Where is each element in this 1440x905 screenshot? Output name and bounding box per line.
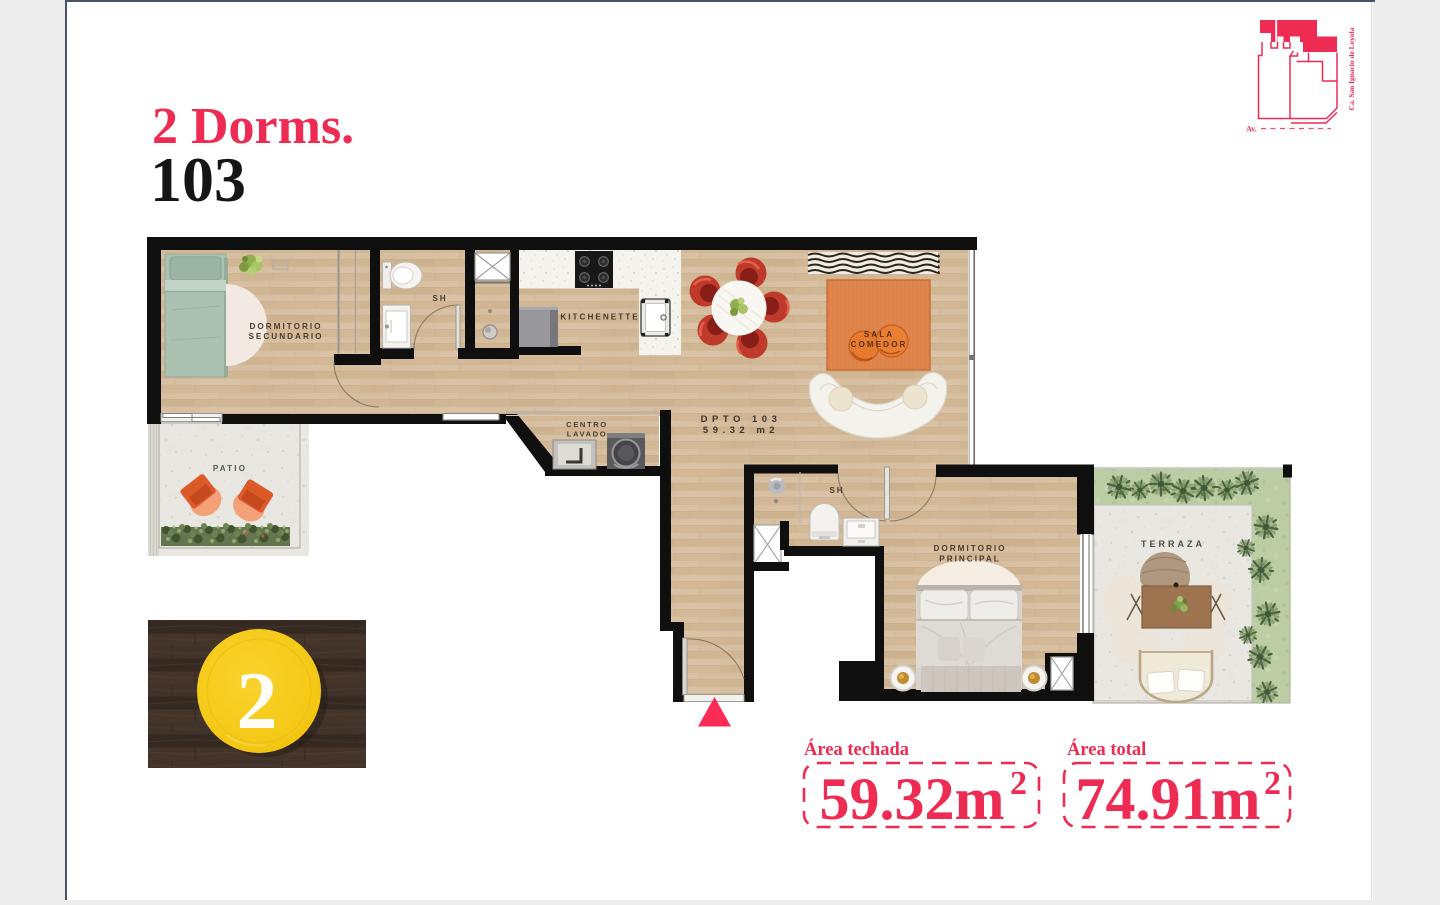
svg-text:SECUNDARIO: SECUNDARIO (248, 332, 323, 341)
svg-text:KITCHENETTE: KITCHENETTE (560, 313, 639, 322)
svg-text:59.32 m2: 59.32 m2 (703, 425, 779, 436)
svg-text:Área total: Área total (1067, 738, 1146, 760)
svg-text:103: 103 (150, 144, 246, 215)
svg-text:Área techada: Área techada (804, 738, 909, 760)
svg-text:TERRAZA: TERRAZA (1141, 539, 1205, 549)
svg-text:COMEDOR: COMEDOR (851, 340, 908, 349)
svg-text:74.91m: 74.91m (1076, 766, 1261, 832)
svg-text:2: 2 (1264, 765, 1281, 802)
svg-text:SH: SH (829, 486, 844, 495)
svg-text:SALA: SALA (864, 330, 894, 339)
svg-text:PRINCIPAL: PRINCIPAL (939, 555, 1001, 564)
svg-text:DORMITORIO: DORMITORIO (933, 544, 1006, 553)
svg-text:2: 2 (237, 655, 278, 746)
svg-text:PATIO: PATIO (213, 464, 247, 473)
svg-text:59.32m: 59.32m (820, 766, 1005, 832)
svg-text:CENTRO: CENTRO (566, 420, 608, 429)
svg-text:Av.: Av. (1246, 125, 1257, 134)
svg-text:Ca. San Ignacio de Loyola: Ca. San Ignacio de Loyola (1347, 27, 1356, 110)
svg-text:DORMITORIO: DORMITORIO (249, 322, 322, 331)
svg-text:2: 2 (1010, 765, 1027, 802)
svg-text:SH: SH (432, 294, 447, 303)
svg-text:DPTO 103: DPTO 103 (701, 414, 782, 425)
svg-text:LAVADO: LAVADO (567, 430, 608, 439)
